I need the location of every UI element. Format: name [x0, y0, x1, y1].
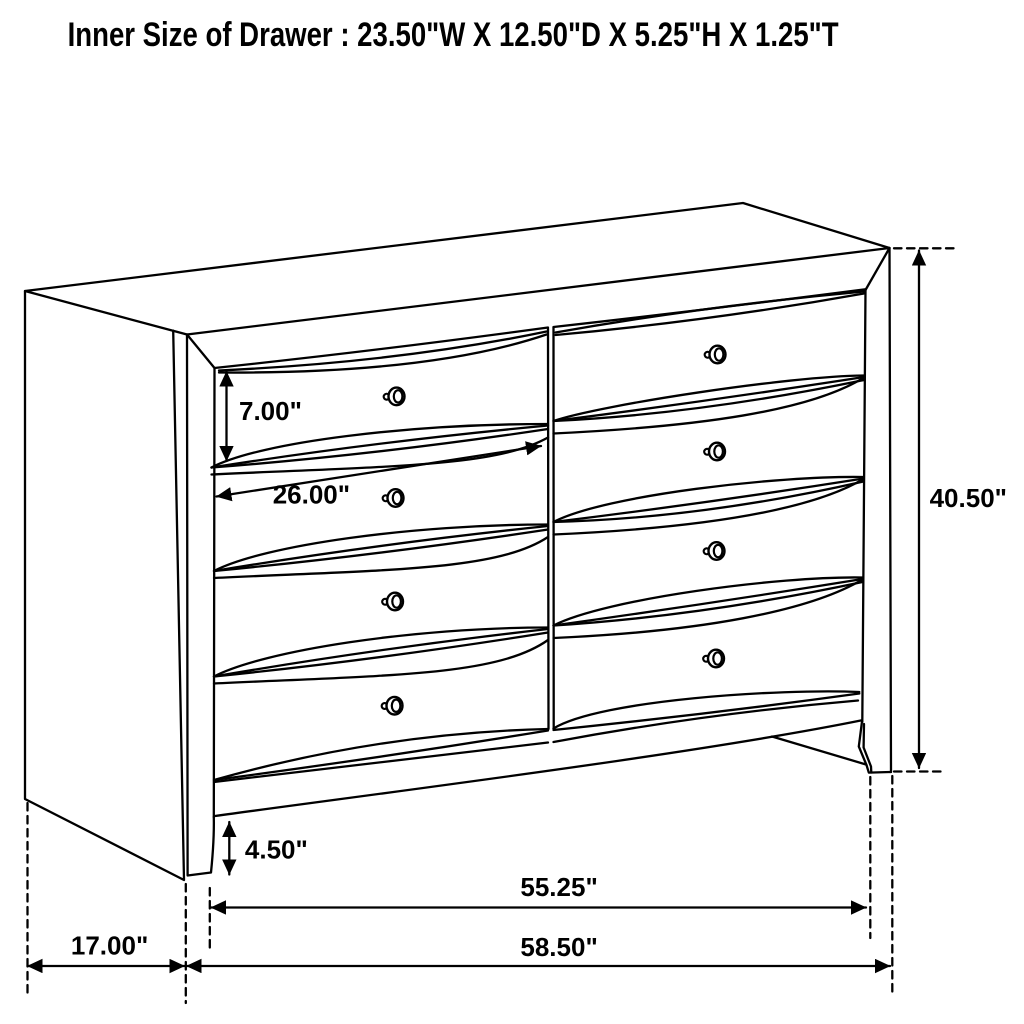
svg-text:55.25": 55.25": [520, 872, 597, 902]
svg-text:4.50": 4.50": [245, 835, 308, 865]
svg-text:Inner Size of Drawer : 23.50"W: Inner Size of Drawer : 23.50"W X 12.50"D…: [68, 16, 839, 54]
svg-text:7.00": 7.00": [239, 396, 302, 426]
svg-text:40.50": 40.50": [930, 483, 1007, 513]
svg-text:58.50": 58.50": [520, 932, 597, 962]
svg-text:26.00": 26.00": [273, 480, 350, 510]
svg-text:17.00": 17.00": [71, 931, 148, 961]
